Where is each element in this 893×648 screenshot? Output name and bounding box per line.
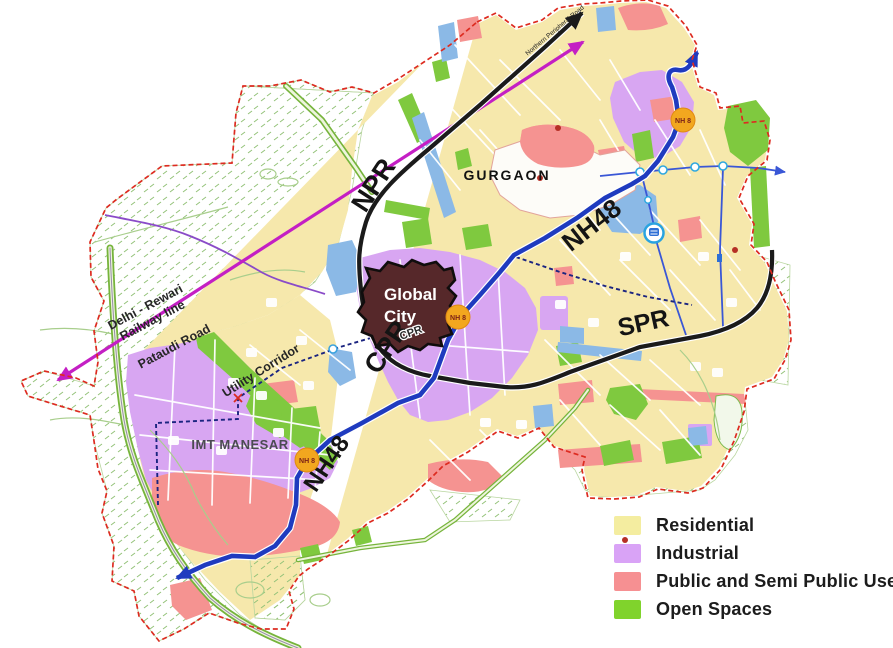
master-plan-map: Global City NPR Northern Peripheral Road… [0, 0, 893, 648]
svg-text:NH 8: NH 8 [675, 118, 691, 125]
industrial-label: Industrial [656, 543, 739, 564]
open-spaces-label: Open Spaces [656, 599, 772, 620]
industrial-swatch [614, 544, 641, 563]
legend-row-residential: Residential [614, 511, 893, 539]
public-swatch [614, 572, 641, 591]
nh8-badge-center: NH 8 [446, 305, 470, 329]
legend-row-open-spaces: Open Spaces [614, 595, 893, 623]
global-city-label-line1: Global [384, 285, 437, 304]
legend-row-public: Public and Semi Public Use [614, 567, 893, 595]
legend: Residential Industrial Public and Semi P… [614, 511, 893, 623]
utility-node [329, 345, 337, 353]
open-spaces-swatch [614, 600, 641, 619]
imt-manesar-label: IMT MANESAR [191, 437, 288, 452]
residential-label: Residential [656, 515, 754, 536]
nh8-badge-south: NH 8 [295, 448, 319, 472]
nh8-badge-north: NH 8 [671, 108, 695, 132]
station-marker [717, 254, 722, 262]
svg-text:NH 8: NH 8 [450, 315, 466, 322]
metro-depot-icon [645, 224, 664, 243]
public-label: Public and Semi Public Use [656, 571, 893, 592]
gurgaon-label: GURGAON [463, 167, 550, 183]
residential-swatch [614, 516, 641, 535]
hatch-pockets [250, 556, 305, 620]
legend-row-industrial: Industrial [614, 539, 893, 567]
svg-text:NH 8: NH 8 [299, 458, 315, 465]
